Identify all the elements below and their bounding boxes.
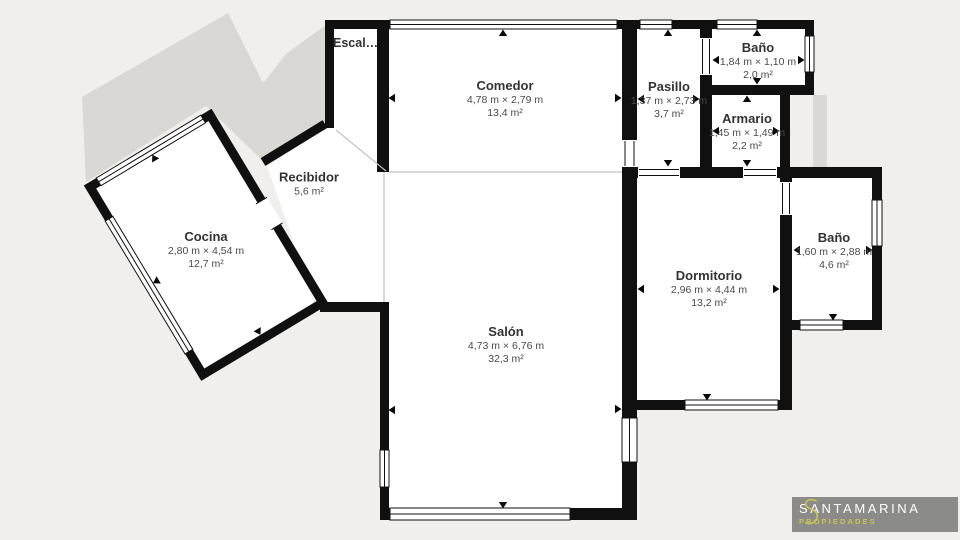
door-opening [638,167,680,178]
wall-segment [680,167,743,178]
room-label-escalera: Escal… [333,36,381,50]
room-fill [622,167,792,410]
door-opening [743,167,777,178]
wall-segment [622,167,637,520]
room-fill [380,167,637,520]
wall-segment [320,302,389,312]
floor-plan-drawing [0,0,960,540]
wall-segment [700,85,814,95]
door-opening [700,38,712,75]
logo-s-icon [800,497,822,527]
agency-logo: SANTAMARINA PROPIEDADES [792,497,958,532]
wall-segment [777,167,882,178]
shadow-right-notch [813,95,827,172]
wall-segment [780,167,792,182]
wall-segment [700,20,712,38]
door-opening [622,140,637,167]
wall-segment [622,20,637,140]
wall-segment [780,215,792,410]
room-fill [700,95,790,178]
wall-segment [622,167,638,178]
wall-segment [872,167,882,330]
wall-segment [780,95,790,178]
floor-plan: Escal… Comedor 4,78 m × 2,79 m 13,4 m² P… [0,0,960,540]
door-opening [780,182,792,215]
